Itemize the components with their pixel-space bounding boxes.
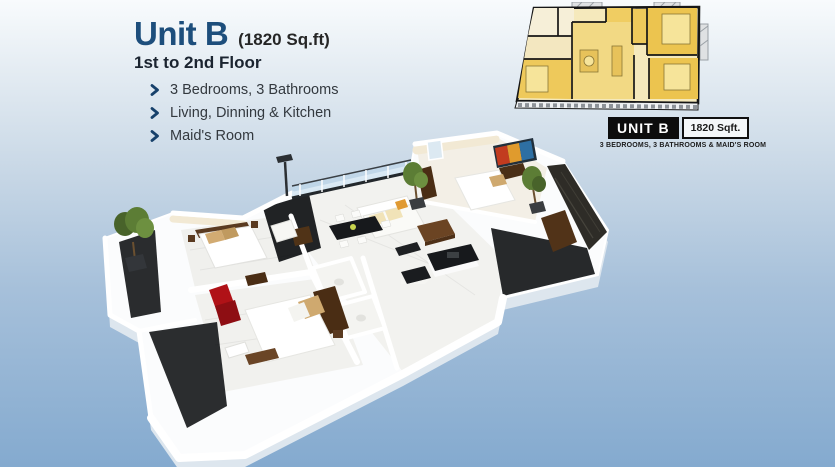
brochure-page: Unit B (1820 Sq.ft) 1st to 2nd Floor 3 B… — [0, 0, 835, 467]
unit-area-text: (1820 Sq.ft) — [238, 30, 330, 50]
master-glass-door — [427, 140, 443, 160]
street-lamp — [276, 154, 293, 196]
chevron-bullet-icon — [150, 107, 160, 119]
feature-item: 3 Bedrooms, 3 Bathrooms — [150, 82, 338, 98]
room-foyer — [606, 8, 632, 22]
plan2d-balcony-hatch — [515, 101, 698, 110]
feature-label: Living, Dinning & Kitchen — [170, 105, 331, 121]
room-maid — [528, 8, 574, 36]
area-badge: 1820 Sqft. — [682, 117, 750, 139]
floorplan-2d-thumbnail — [514, 2, 716, 114]
room-bath-left — [524, 36, 572, 59]
feature-label: 3 Bedrooms, 3 Bathrooms — [170, 82, 338, 98]
floor-range-text: 1st to 2nd Floor — [134, 53, 338, 73]
page-title: Unit B — [134, 18, 228, 49]
feature-item: Living, Dinning & Kitchen — [150, 105, 338, 121]
floorplan-3d-render — [95, 130, 680, 467]
title-row: Unit B (1820 Sq.ft) — [134, 18, 338, 50]
room-bath-mid — [632, 9, 647, 44]
chevron-bullet-icon — [150, 84, 160, 96]
